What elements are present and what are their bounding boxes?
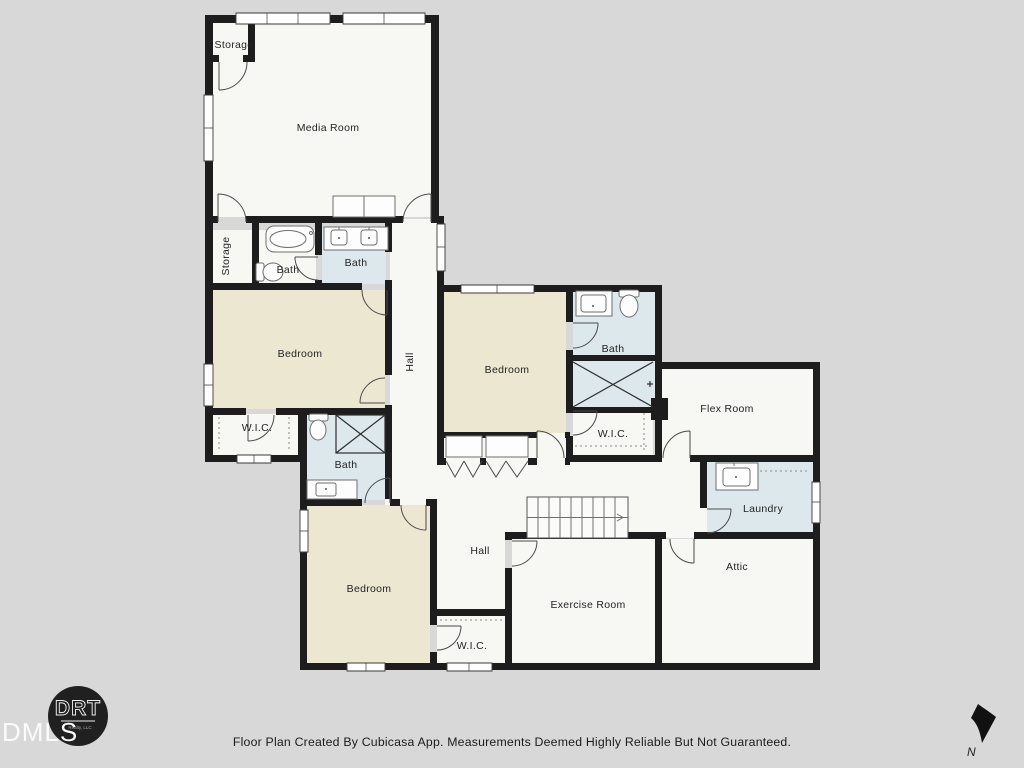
floor-plan-page: Storage Media Room Storage Bath Bath Hal… bbox=[0, 0, 1024, 768]
north-label: N bbox=[967, 745, 976, 759]
room-label-storage-top: Storage bbox=[215, 39, 254, 51]
stairs bbox=[527, 497, 628, 538]
room-label-bath-mid-left: Bath bbox=[335, 459, 358, 471]
logo-mls-text: DMLS bbox=[2, 717, 78, 747]
room-label-flex: Flex Room bbox=[700, 403, 753, 415]
closet-box bbox=[446, 436, 482, 457]
room-label-attic: Attic bbox=[726, 561, 748, 573]
room-label-hall-lower: Hall bbox=[470, 545, 489, 557]
room-label-bedroom-lower: Bedroom bbox=[347, 583, 392, 595]
room-label-bath-upper-left: Bath bbox=[277, 264, 300, 276]
room-label-bath-upper-mid: Bath bbox=[345, 257, 368, 269]
room-label-media: Media Room bbox=[297, 122, 360, 134]
sink-drain bbox=[338, 237, 340, 239]
room-label-laundry: Laundry bbox=[743, 503, 783, 515]
media-room-floor bbox=[212, 22, 431, 217]
room-label-wic-center: W.I.C. bbox=[598, 428, 628, 440]
closet-box bbox=[486, 436, 528, 457]
sink-drain bbox=[368, 237, 370, 239]
sink-drain bbox=[592, 305, 594, 307]
room-label-wic-left: W.I.C. bbox=[242, 422, 272, 434]
attic-floor bbox=[662, 539, 813, 664]
sink-drain bbox=[735, 476, 737, 478]
bathtub-faucet bbox=[310, 232, 313, 235]
toilet bbox=[620, 295, 638, 317]
room-label-storage-left: Storage bbox=[220, 237, 232, 276]
room-label-bedroom-center: Bedroom bbox=[485, 364, 530, 376]
bedroom-center-floor bbox=[444, 292, 566, 433]
room-label-exercise: Exercise Room bbox=[550, 599, 625, 611]
room-label-bath-right: Bath bbox=[602, 343, 625, 355]
wic-left-floor bbox=[212, 414, 299, 456]
toilet bbox=[310, 420, 326, 440]
sink-drain bbox=[325, 488, 327, 490]
bathtub bbox=[266, 226, 314, 252]
room-label-hall-upper: Hall bbox=[404, 352, 416, 371]
storage-left-floor bbox=[212, 230, 253, 284]
room-label-bedroom-left: Bedroom bbox=[278, 348, 323, 360]
footer-disclaimer: Floor Plan Created By Cubicasa App. Meas… bbox=[233, 735, 791, 749]
floor-plan: Storage Media Room Storage Bath Bath Hal… bbox=[0, 0, 1024, 768]
room-label-wic-lower: W.I.C. bbox=[457, 640, 487, 652]
